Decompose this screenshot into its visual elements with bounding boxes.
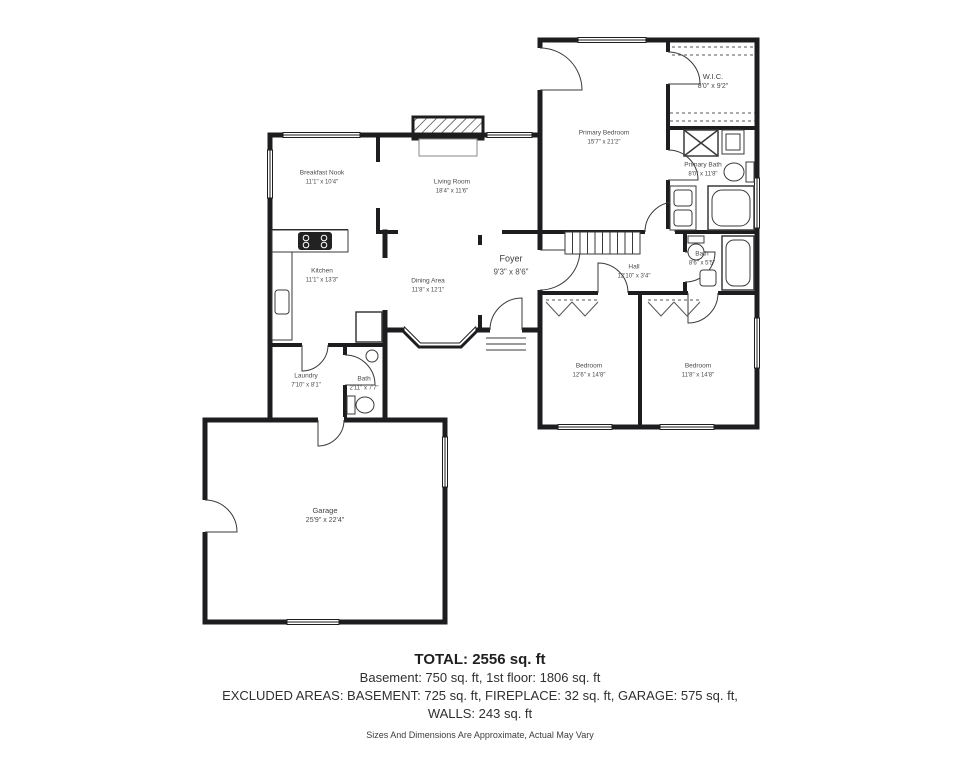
bathtub-icon — [722, 236, 754, 290]
room-name: W.I.C. — [698, 71, 729, 82]
area-summary: TOTAL: 2556 sq. ft Basement: 750 sq. ft,… — [0, 651, 960, 740]
room-dims: 7'10" x 8'1" — [291, 381, 321, 390]
room-dims: 12'10" x 3'4" — [618, 272, 651, 281]
room-dims: 15'7" x 21'2" — [579, 138, 630, 147]
kitchen-sink-icon — [275, 290, 289, 314]
bedroom-right-door-arc — [688, 293, 718, 323]
wic-shelf — [672, 47, 753, 55]
room-dims: 25'9" x 22'4" — [306, 516, 344, 527]
summary-excluded-areas: EXCLUDED AREAS: BASEMENT: 725 sq. ft, FI… — [0, 688, 960, 703]
room-label-foyer: Foyer 9'3" x 8'6" — [494, 252, 529, 278]
summary-floors: Basement: 750 sq. ft, 1st floor: 1806 sq… — [0, 670, 960, 685]
room-name: Laundry — [291, 372, 321, 382]
shower-icon — [684, 130, 718, 156]
room-label-bedroom-right: Bedroom 11'8" x 14'8" — [682, 362, 714, 381]
room-label-dining-area: Dining Area 11'8" x 12'1" — [411, 277, 445, 296]
room-label-bedroom-center: Bedroom 12'6" x 14'8" — [573, 362, 606, 381]
room-name: Primary Bedroom — [579, 129, 630, 139]
summary-total: TOTAL: 2556 sq. ft — [0, 651, 960, 668]
room-name: Bedroom — [573, 362, 606, 372]
linen-cabinet — [722, 130, 744, 154]
room-label-laundry: Laundry 7'10" x 8'1" — [291, 372, 321, 391]
summary-disclaimer: Sizes And Dimensions Are Approximate, Ac… — [0, 730, 960, 740]
room-dims: 11'1" x 13'3" — [306, 276, 338, 285]
double-vanity-sink-icon — [670, 186, 696, 230]
room-label-hall-bath: Bath 8'6" x 5'5" — [689, 250, 715, 269]
room-dims: 11'8" x 14'8" — [682, 371, 714, 380]
hearth — [419, 139, 477, 156]
room-name: Garage — [306, 505, 344, 516]
bay-window — [402, 327, 478, 348]
sink-icon — [366, 350, 378, 362]
room-dims: 11'1" x 10'4" — [300, 178, 344, 187]
garage-service-door-arc — [205, 500, 237, 532]
room-name: Breakfast Nook — [300, 169, 344, 179]
staircase — [565, 232, 640, 254]
summary-walls: WALLS: 243 sq. ft — [0, 706, 960, 721]
toilet-icon — [724, 162, 754, 182]
bathtub-icon — [708, 186, 754, 230]
laundry-door-arc — [302, 345, 328, 371]
room-label-wic: W.I.C. 8'0" x 9'2" — [698, 71, 729, 93]
room-name: Primary Bath — [684, 161, 722, 171]
floor-plan-page: Primary Bedroom 15'7" x 21'2" W.I.C. 8'0… — [0, 0, 960, 768]
foyer-hall-door-arc — [540, 250, 580, 290]
refrigerator-icon — [356, 312, 382, 342]
room-name: Bath — [689, 250, 715, 260]
closet-rod — [670, 113, 755, 121]
room-label-breakfast-nook: Breakfast Nook 11'1" x 10'4" — [300, 169, 344, 188]
primary-bedroom-exterior-door-arc — [540, 48, 582, 90]
sink-icon — [700, 270, 716, 286]
room-label-living-room: Living Room 18'4" x 11'6" — [434, 178, 470, 197]
room-name: Bedroom — [682, 362, 714, 372]
room-name: Kitchen — [306, 267, 338, 277]
room-dims: 8'0" x 11'8" — [684, 170, 722, 179]
garage-entry-door-arc — [318, 420, 344, 446]
room-name: Living Room — [434, 178, 470, 188]
room-dims: 18'4" x 11'6" — [434, 187, 470, 196]
room-dims: 12'6" x 14'8" — [573, 371, 606, 380]
room-label-garage: Garage 25'9" x 22'4" — [306, 505, 344, 527]
bifold-closet-door — [546, 300, 598, 316]
room-name: Dining Area — [411, 277, 445, 287]
front-door-arc — [490, 298, 522, 330]
room-name: Bath — [349, 375, 378, 385]
fireplace — [413, 117, 483, 156]
room-dims: 8'6" x 5'5" — [689, 259, 715, 268]
kitchen-fixtures — [272, 230, 382, 342]
room-dims: 11'8" x 12'1" — [411, 286, 445, 295]
room-name: Hall — [618, 263, 651, 273]
stove-icon — [298, 232, 332, 250]
room-dims: 9'3" x 8'6" — [494, 266, 529, 278]
room-label-primary-bedroom: Primary Bedroom 15'7" x 21'2" — [579, 129, 630, 148]
wic-door-arc — [668, 52, 700, 84]
porch-steps — [486, 338, 526, 350]
room-label-primary-bath: Primary Bath 8'0" x 11'8" — [684, 161, 722, 180]
room-label-kitchen: Kitchen 11'1" x 13'3" — [306, 267, 338, 286]
room-label-small-bath: Bath 2'11" x 7'7" — [349, 375, 378, 394]
room-dims: 8'0" x 9'2" — [698, 82, 729, 93]
bifold-closet-door — [648, 300, 700, 316]
room-name: Foyer — [494, 252, 529, 266]
room-label-hall: Hall 12'10" x 3'4" — [618, 263, 651, 282]
room-dims: 2'11" x 7'7" — [349, 384, 378, 393]
toilet-icon — [347, 396, 374, 414]
